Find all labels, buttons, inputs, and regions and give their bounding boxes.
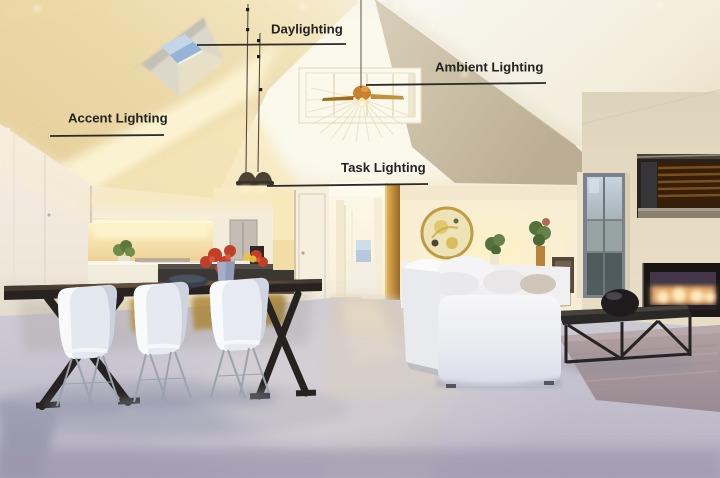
- svg-text:Ambient Lighting: Ambient Lighting: [435, 60, 543, 75]
- svg-text:Daylighting: Daylighting: [271, 22, 343, 37]
- svg-text:Accent Lighting: Accent Lighting: [68, 111, 168, 126]
- svg-text:Task Lighting: Task Lighting: [341, 160, 426, 175]
